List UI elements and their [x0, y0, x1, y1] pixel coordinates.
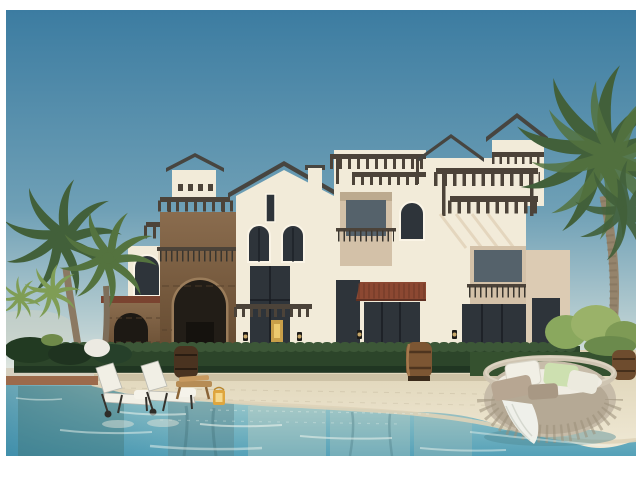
- wall-lantern: [452, 330, 457, 339]
- pillow-beige-small: [528, 383, 559, 400]
- rendering-frame: [0, 0, 640, 480]
- villa-photo: [6, 10, 636, 456]
- wall-lantern: [297, 332, 302, 341]
- barrel: [174, 346, 198, 378]
- arch-window: [400, 202, 424, 240]
- tower-balcony-rail: [157, 247, 243, 251]
- mid-block: [330, 150, 438, 360]
- barrel: [406, 342, 432, 378]
- wall-lantern: [357, 330, 362, 339]
- white-umbrella-top: [84, 339, 110, 357]
- slit-window: [266, 194, 275, 222]
- lounger-reflection: [147, 419, 179, 427]
- wall-lantern: [243, 332, 248, 341]
- recessed-balcony: [336, 192, 396, 266]
- chimney: [308, 168, 322, 196]
- lounger-reflection: [102, 420, 134, 428]
- candle-lantern: [213, 388, 225, 406]
- balcony: [467, 246, 529, 304]
